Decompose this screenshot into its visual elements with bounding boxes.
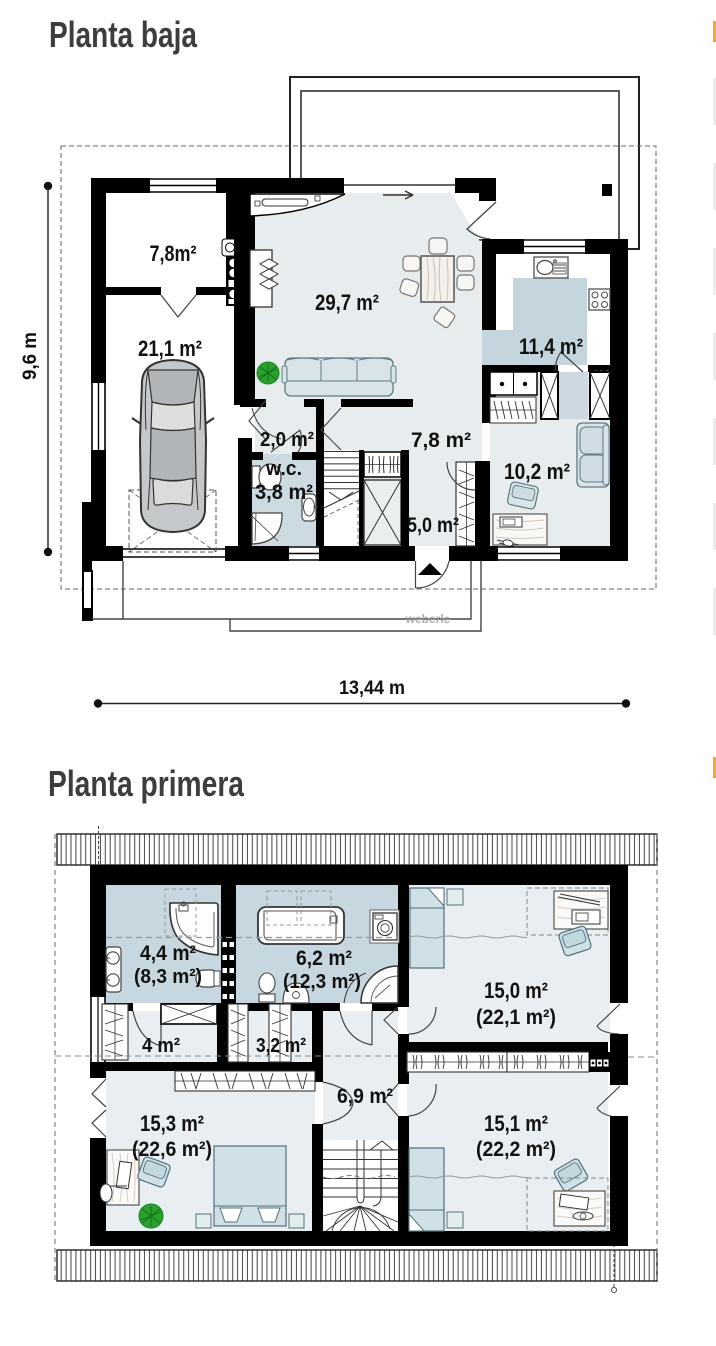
svg-text:15,3 m²: 15,3 m² (140, 1111, 204, 1136)
svg-text:10,2 m²: 10,2 m² (504, 459, 570, 484)
svg-text:(22,6 m²): (22,6 m²) (132, 1138, 212, 1161)
svg-text:4,4 m²: 4,4 m² (140, 942, 196, 965)
svg-text:(12,3 m²): (12,3 m²) (283, 971, 361, 993)
svg-text:6,9 m²: 6,9 m² (337, 1085, 393, 1108)
svg-text:Planta baja: Planta baja (49, 14, 198, 55)
svg-text:Planta primera: Planta primera (48, 763, 245, 804)
svg-text:21,1 m²: 21,1 m² (138, 336, 202, 361)
svg-text:w.c.: w.c. (265, 458, 302, 480)
svg-text:7,8 m²: 7,8 m² (411, 429, 471, 452)
svg-text:11,4 m²: 11,4 m² (519, 334, 583, 359)
svg-text:13,44 m: 13,44 m (339, 678, 405, 699)
svg-text:(8,3 m²): (8,3 m²) (134, 966, 202, 988)
svg-text:4 m²: 4 m² (142, 1035, 180, 1057)
svg-text:6,2 m²: 6,2 m² (296, 947, 352, 970)
svg-text:5,0 m²: 5,0 m² (407, 514, 459, 537)
svg-text:15,0 m²: 15,0 m² (484, 978, 548, 1003)
svg-text:(22,1 m²): (22,1 m²) (476, 1006, 556, 1029)
svg-text:3,2 m²: 3,2 m² (256, 1035, 306, 1057)
svg-text:(22,2 m²): (22,2 m²) (476, 1138, 556, 1161)
svg-text:3,8 m²: 3,8 m² (255, 481, 313, 504)
svg-text:29,7 m²: 29,7 m² (315, 290, 379, 315)
svg-text:2,0 m²: 2,0 m² (260, 429, 314, 451)
svg-text:weberle: weberle (405, 612, 451, 626)
svg-text:15,1 m²: 15,1 m² (484, 1111, 548, 1136)
svg-text:9,6 m: 9,6 m (20, 332, 41, 380)
svg-text:7,8m²: 7,8m² (150, 241, 197, 266)
